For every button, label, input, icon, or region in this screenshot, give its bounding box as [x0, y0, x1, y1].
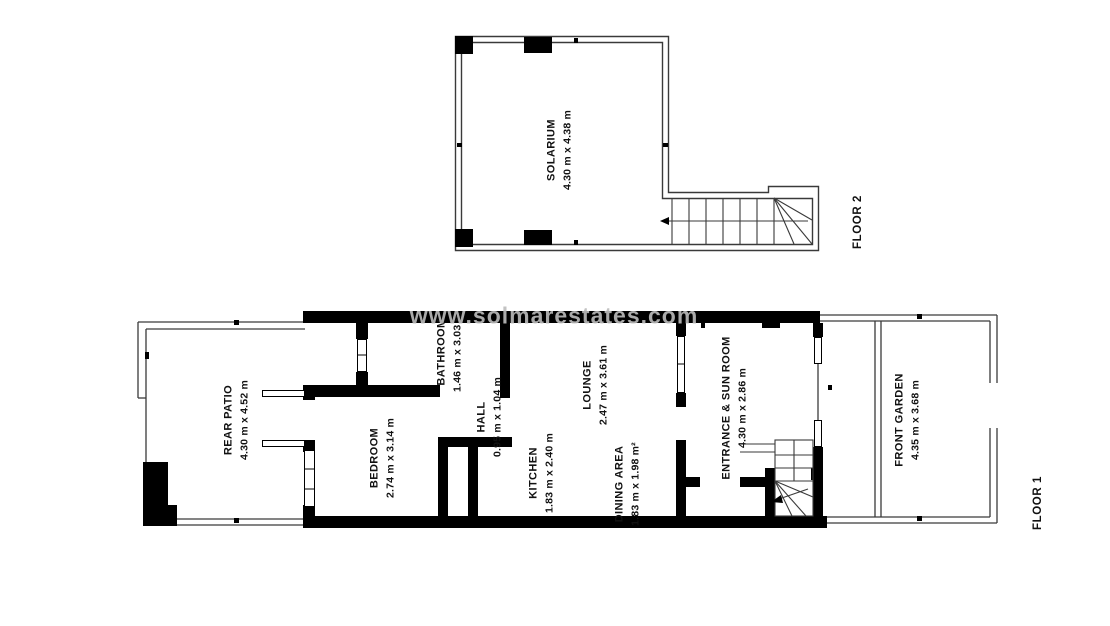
floorplan-page: www.solmarestates.com SOLARIUM 4.30 m x …	[0, 0, 1110, 626]
room-name: REAR PATIO	[221, 380, 237, 460]
room-label-bedroom: BEDROOM 2.74 m x 3.14 m	[367, 418, 398, 498]
floor2-stairs	[668, 198, 812, 244]
floor1-label: FLOOR 1	[1032, 476, 1044, 530]
watermark-text: www.solmarestates.com	[410, 303, 699, 330]
room-dims: 1.83 m x 1.98 m²	[628, 442, 643, 526]
floor2-stairs-arrowhead	[660, 217, 669, 225]
room-name: HALL	[474, 377, 490, 457]
floor2-outline	[456, 37, 819, 251]
room-dims: 4.30 m x 2.86 m	[735, 336, 750, 479]
room-dims: 4.35 m x 3.68 m	[908, 373, 923, 466]
room-name: KITCHEN	[526, 433, 542, 513]
room-name: DINING AREA	[612, 442, 628, 526]
room-dims: 4.30 m x 4.52 m	[237, 380, 252, 460]
room-label-kitchen: KITCHEN 1.83 m x 2.40 m	[526, 433, 557, 513]
room-label-solarium: SOLARIUM 4.30 m x 4.38 m	[544, 110, 575, 190]
room-dims: 2.47 m x 3.61 m	[596, 345, 611, 425]
room-name: SOLARIUM	[544, 110, 560, 190]
floor2-label: FLOOR 2	[852, 195, 864, 249]
room-label-dining-area: DINING AREA 1.83 m x 1.98 m²	[612, 442, 643, 526]
room-label-hall: HALL 0.95 m x 1.04 m	[474, 377, 505, 457]
room-dims: 1.83 m x 2.40 m	[542, 433, 557, 513]
room-label-entrance-sun-room: ENTRANCE & SUN ROOM 4.30 m x 2.86 m	[719, 336, 750, 479]
room-label-rear-patio: REAR PATIO 4.30 m x 4.52 m	[221, 380, 252, 460]
room-label-lounge: LOUNGE 2.47 m x 3.61 m	[580, 345, 611, 425]
room-name: LOUNGE	[580, 345, 596, 425]
room-dims: 0.95 m x 1.04 m	[490, 377, 505, 457]
room-name: FRONT GARDEN	[892, 373, 908, 466]
room-name: ENTRANCE & SUN ROOM	[719, 336, 735, 479]
room-dims: 2.74 m x 3.14 m	[383, 418, 398, 498]
room-name: BEDROOM	[367, 418, 383, 498]
room-dims: 4.30 m x 4.38 m	[560, 110, 575, 190]
room-label-front-garden: FRONT GARDEN 4.35 m x 3.68 m	[892, 373, 923, 466]
